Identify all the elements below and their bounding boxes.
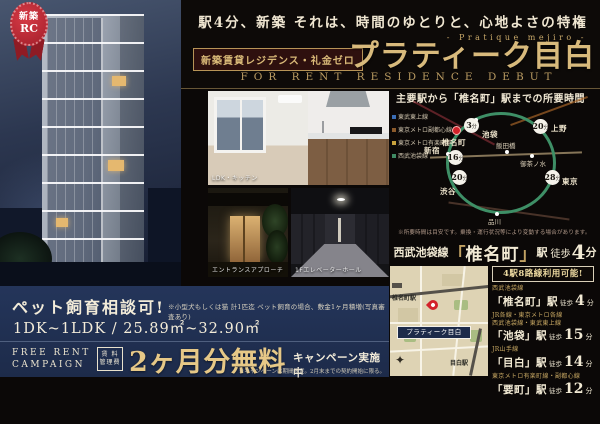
campaign-panel: ペット飼育相談可! ※小型犬もしくは猫 計1匹迄 ペット飼育の場合、敷金1ヶ月積… bbox=[0, 286, 389, 377]
access-unit: 分 bbox=[585, 386, 592, 396]
access-list-header: 4駅8路線利用可能! bbox=[492, 266, 594, 282]
line-color-chip bbox=[392, 115, 396, 119]
bracket-close: 」 bbox=[520, 240, 537, 265]
access-row: 「目白」駅 徒歩 14 分 bbox=[492, 354, 598, 370]
access-unit: 分 bbox=[585, 332, 592, 342]
door-frame bbox=[243, 216, 245, 262]
access-mode: 徒歩 bbox=[549, 331, 562, 341]
road-line bbox=[420, 266, 422, 376]
window-mullion bbox=[240, 100, 242, 150]
entrance-door-glow bbox=[230, 216, 260, 262]
access-banner: 西武池袋線「椎名町」駅徒歩4分 bbox=[390, 238, 600, 266]
access-lines: JR各線・東京メトロ各線 bbox=[492, 312, 598, 320]
access-item: 東京メトロ有楽町線・副都心線 「要町」駅 徒歩 12 分 bbox=[492, 373, 598, 397]
shiinamachi-station-mark bbox=[392, 283, 402, 288]
line-tag: 東京メトロ副都心線 bbox=[392, 125, 452, 134]
kitchen-cabinets bbox=[308, 139, 389, 185]
minutes: 28 bbox=[544, 170, 555, 185]
access-station: 「池袋」駅 bbox=[492, 328, 547, 343]
map-pin-label: プラティーク目白 bbox=[397, 326, 471, 339]
map-pin-icon bbox=[426, 298, 440, 312]
free-rent-line2: CAMPAIGN bbox=[12, 359, 91, 371]
station-label-tokyo: 東京 bbox=[562, 176, 578, 187]
access-item: JR各線・東京メトロ各線 西武池袋線・東武東上線 「池袋」駅 徒歩 15 分 bbox=[492, 312, 598, 344]
line-color-chip bbox=[392, 154, 396, 158]
photo-entrance: エントランスアプローチ bbox=[208, 188, 288, 277]
floor-slabs bbox=[42, 14, 144, 266]
station-dot-iidabashi bbox=[505, 150, 509, 154]
fee-label-box: 賃 料 管理費 bbox=[97, 347, 123, 371]
campaign-tail: キャンペーン実施中 bbox=[293, 350, 389, 380]
access-mode: 徒歩 bbox=[549, 358, 562, 368]
window bbox=[214, 97, 266, 153]
map-station-right-label: 目白駅 bbox=[450, 358, 468, 367]
minutes: 16 bbox=[447, 150, 458, 165]
station-label-shinjuku: 新宿 bbox=[424, 145, 440, 156]
unit: 分 bbox=[556, 172, 561, 187]
access-minutes: 15 bbox=[564, 327, 583, 343]
hall-far-wall bbox=[325, 214, 355, 244]
header-band: 駅4分、新築 それは、時間のゆとりと、心地よさの特権 - Pratique me… bbox=[181, 0, 600, 89]
access-unit: 分 bbox=[585, 359, 592, 369]
campaign-note: ※キャンペーンは期間限定。2月末までの契約開始に限る。 bbox=[235, 367, 385, 375]
station-label-ueno: 上野 bbox=[551, 123, 567, 134]
photo-caption: 1Fエレベーターホール bbox=[295, 265, 362, 274]
line-tag-label: 東武東上線 bbox=[398, 112, 428, 121]
flyer-page: 新築 RC 駅4分、新築 それは、時間のゆとりと、心地よさの特権 - Prati… bbox=[0, 0, 600, 424]
minutes: 20 bbox=[451, 170, 462, 185]
station-label-ochanomizu: 御茶ノ水 bbox=[520, 158, 546, 168]
station-label-shinagawa: 品川 bbox=[488, 216, 501, 226]
gas-cooktop bbox=[350, 127, 382, 134]
unit: 分 bbox=[544, 121, 549, 136]
time-badge-ikebukuro: 3分 bbox=[464, 118, 479, 133]
downlight bbox=[337, 198, 345, 201]
access-minutes: 12 bbox=[564, 381, 583, 397]
fee-label-management: 管理費 bbox=[99, 359, 120, 367]
english-subtitle: FOR RENT RESIDENCE DEBUT bbox=[201, 71, 597, 83]
access-lines: 西武池袋線・東武東上線 bbox=[492, 320, 598, 328]
ground-shadow bbox=[0, 262, 181, 286]
fee-label-rent: 賃 料 bbox=[102, 351, 119, 359]
line-tag-list: 東武東上線 東京メトロ副都心線 東京メトロ有楽町線 西武池袋線 bbox=[392, 112, 452, 160]
neighborhood-map: 椎名町駅 目白駅 プラティーク目白 ✦ bbox=[390, 266, 488, 376]
road-line bbox=[390, 322, 488, 324]
catch-copy: 駅4分、新築 それは、時間のゆとりと、心地よさの特権 bbox=[195, 11, 591, 31]
station-label-ikebukuro: 池袋 bbox=[482, 129, 498, 140]
time-badge-shinjuku: 16分 bbox=[448, 150, 463, 165]
access-item: JR山手線 「目白」駅 徒歩 14 分 bbox=[492, 346, 598, 370]
living-room-area bbox=[208, 91, 308, 185]
photo-caption: LDK・キッチン bbox=[212, 173, 258, 182]
air-conditioner bbox=[278, 95, 302, 103]
hall-ceiling bbox=[291, 188, 389, 214]
access-row: 「池袋」駅 徒歩 15 分 bbox=[492, 327, 598, 343]
access-mode: 徒歩 bbox=[560, 297, 573, 307]
route-map-panel: 主要駅から「椎名町」駅までの所要時間 東武東上線 東京メトロ副都心線 東京メトロ… bbox=[390, 88, 600, 238]
origin-station-label: 椎名町 bbox=[442, 137, 466, 148]
lit-window bbox=[108, 160, 124, 171]
free-rent-line1: FREE RENT bbox=[12, 347, 91, 359]
new-construction-ribbon-icon: 新築 RC bbox=[8, 2, 50, 64]
unit: 分 bbox=[463, 172, 468, 187]
banner-walk: 徒歩 bbox=[551, 245, 571, 260]
line-color-chip bbox=[392, 128, 396, 132]
access-item: 西武池袋線 「椎名町」駅 徒歩 4 分 bbox=[492, 285, 598, 309]
bracket-open: 「 bbox=[449, 240, 466, 265]
banner-minutes: 4 bbox=[572, 240, 586, 264]
ribbon-disc: 新築 RC bbox=[10, 2, 48, 46]
time-badge-ueno: 20分 bbox=[533, 119, 548, 134]
kitchen-area bbox=[308, 91, 389, 185]
unit: 分 bbox=[459, 152, 464, 167]
photo-elevator-hall: 1Fエレベーターホール bbox=[291, 188, 389, 277]
banner-eki: 駅 bbox=[537, 244, 548, 260]
property-title: プラティーク目白 bbox=[339, 31, 595, 75]
access-minutes: 14 bbox=[564, 354, 583, 370]
route-map-note: ※所要時間は目安です。乗換・運行状況等により変動する場合があります。 bbox=[398, 228, 598, 236]
plant-foliage bbox=[266, 230, 288, 264]
access-unit: 分 bbox=[587, 298, 594, 308]
line-tag-label: 東京メトロ副都心線 bbox=[398, 125, 452, 134]
unit: 分 bbox=[472, 120, 477, 135]
route-map-title: 主要駅から「椎名町」駅までの所要時間 bbox=[396, 90, 585, 105]
access-row: 「要町」駅 徒歩 12 分 bbox=[492, 381, 598, 397]
pet-heading: ペット飼育相談可! bbox=[12, 294, 165, 318]
access-station: 「要町」駅 bbox=[492, 382, 547, 397]
access-mode: 徒歩 bbox=[549, 385, 562, 395]
banner-line-name: 西武池袋線 bbox=[394, 244, 449, 260]
lit-window bbox=[112, 76, 126, 86]
access-minutes: 4 bbox=[575, 293, 585, 309]
map-block bbox=[442, 274, 464, 286]
time-badge-tokyo: 28分 bbox=[545, 170, 560, 185]
faucet bbox=[322, 121, 324, 133]
station-label-shibuya: 渋谷 bbox=[440, 186, 456, 197]
map-block bbox=[398, 308, 418, 322]
photo-living-kitchen: LDK・キッチン bbox=[208, 91, 389, 185]
ribbon-text-rc: RC bbox=[20, 23, 38, 35]
access-station: 「椎名町」駅 bbox=[492, 294, 558, 309]
access-station: 「目白」駅 bbox=[492, 355, 547, 370]
door-light-slit bbox=[338, 218, 341, 242]
station-access-list: 4駅8路線利用可能! 西武池袋線 「椎名町」駅 徒歩 4 分 JR各線・東京メト… bbox=[492, 266, 598, 378]
minutes: 20 bbox=[532, 119, 543, 134]
new-rental-badge: 新築賃貸レジデンス・礼金ゼロ bbox=[193, 48, 363, 71]
access-lines: 西武池袋線 bbox=[492, 285, 598, 293]
photo-caption: エントランスアプローチ bbox=[212, 265, 283, 274]
compass-icon: ✦ bbox=[395, 354, 405, 366]
origin-station-dot bbox=[452, 126, 461, 135]
banner-unit: 分 bbox=[585, 244, 596, 260]
station-label-iidabashi: 飯田橋 bbox=[496, 140, 516, 150]
banner-station-name: 椎名町 bbox=[466, 240, 520, 265]
range-hood bbox=[326, 91, 370, 107]
access-lines: 東京メトロ有楽町線・副都心線 bbox=[492, 373, 598, 381]
map-pin-dot bbox=[430, 302, 436, 308]
free-rent-english: FREE RENT CAMPAIGN bbox=[12, 347, 91, 371]
map-station-left-label: 椎名町駅 bbox=[392, 293, 416, 302]
line-color-chip bbox=[392, 141, 396, 145]
floor-plan-range: 1DK~1LDK / 25.89㎡~32.90㎡ bbox=[13, 317, 260, 338]
building-facade bbox=[42, 14, 144, 266]
access-row: 「椎名町」駅 徒歩 4 分 bbox=[492, 293, 598, 309]
time-badge-shibuya: 20分 bbox=[452, 170, 467, 185]
lit-window bbox=[56, 218, 68, 227]
access-lines: JR山手線 bbox=[492, 346, 598, 354]
